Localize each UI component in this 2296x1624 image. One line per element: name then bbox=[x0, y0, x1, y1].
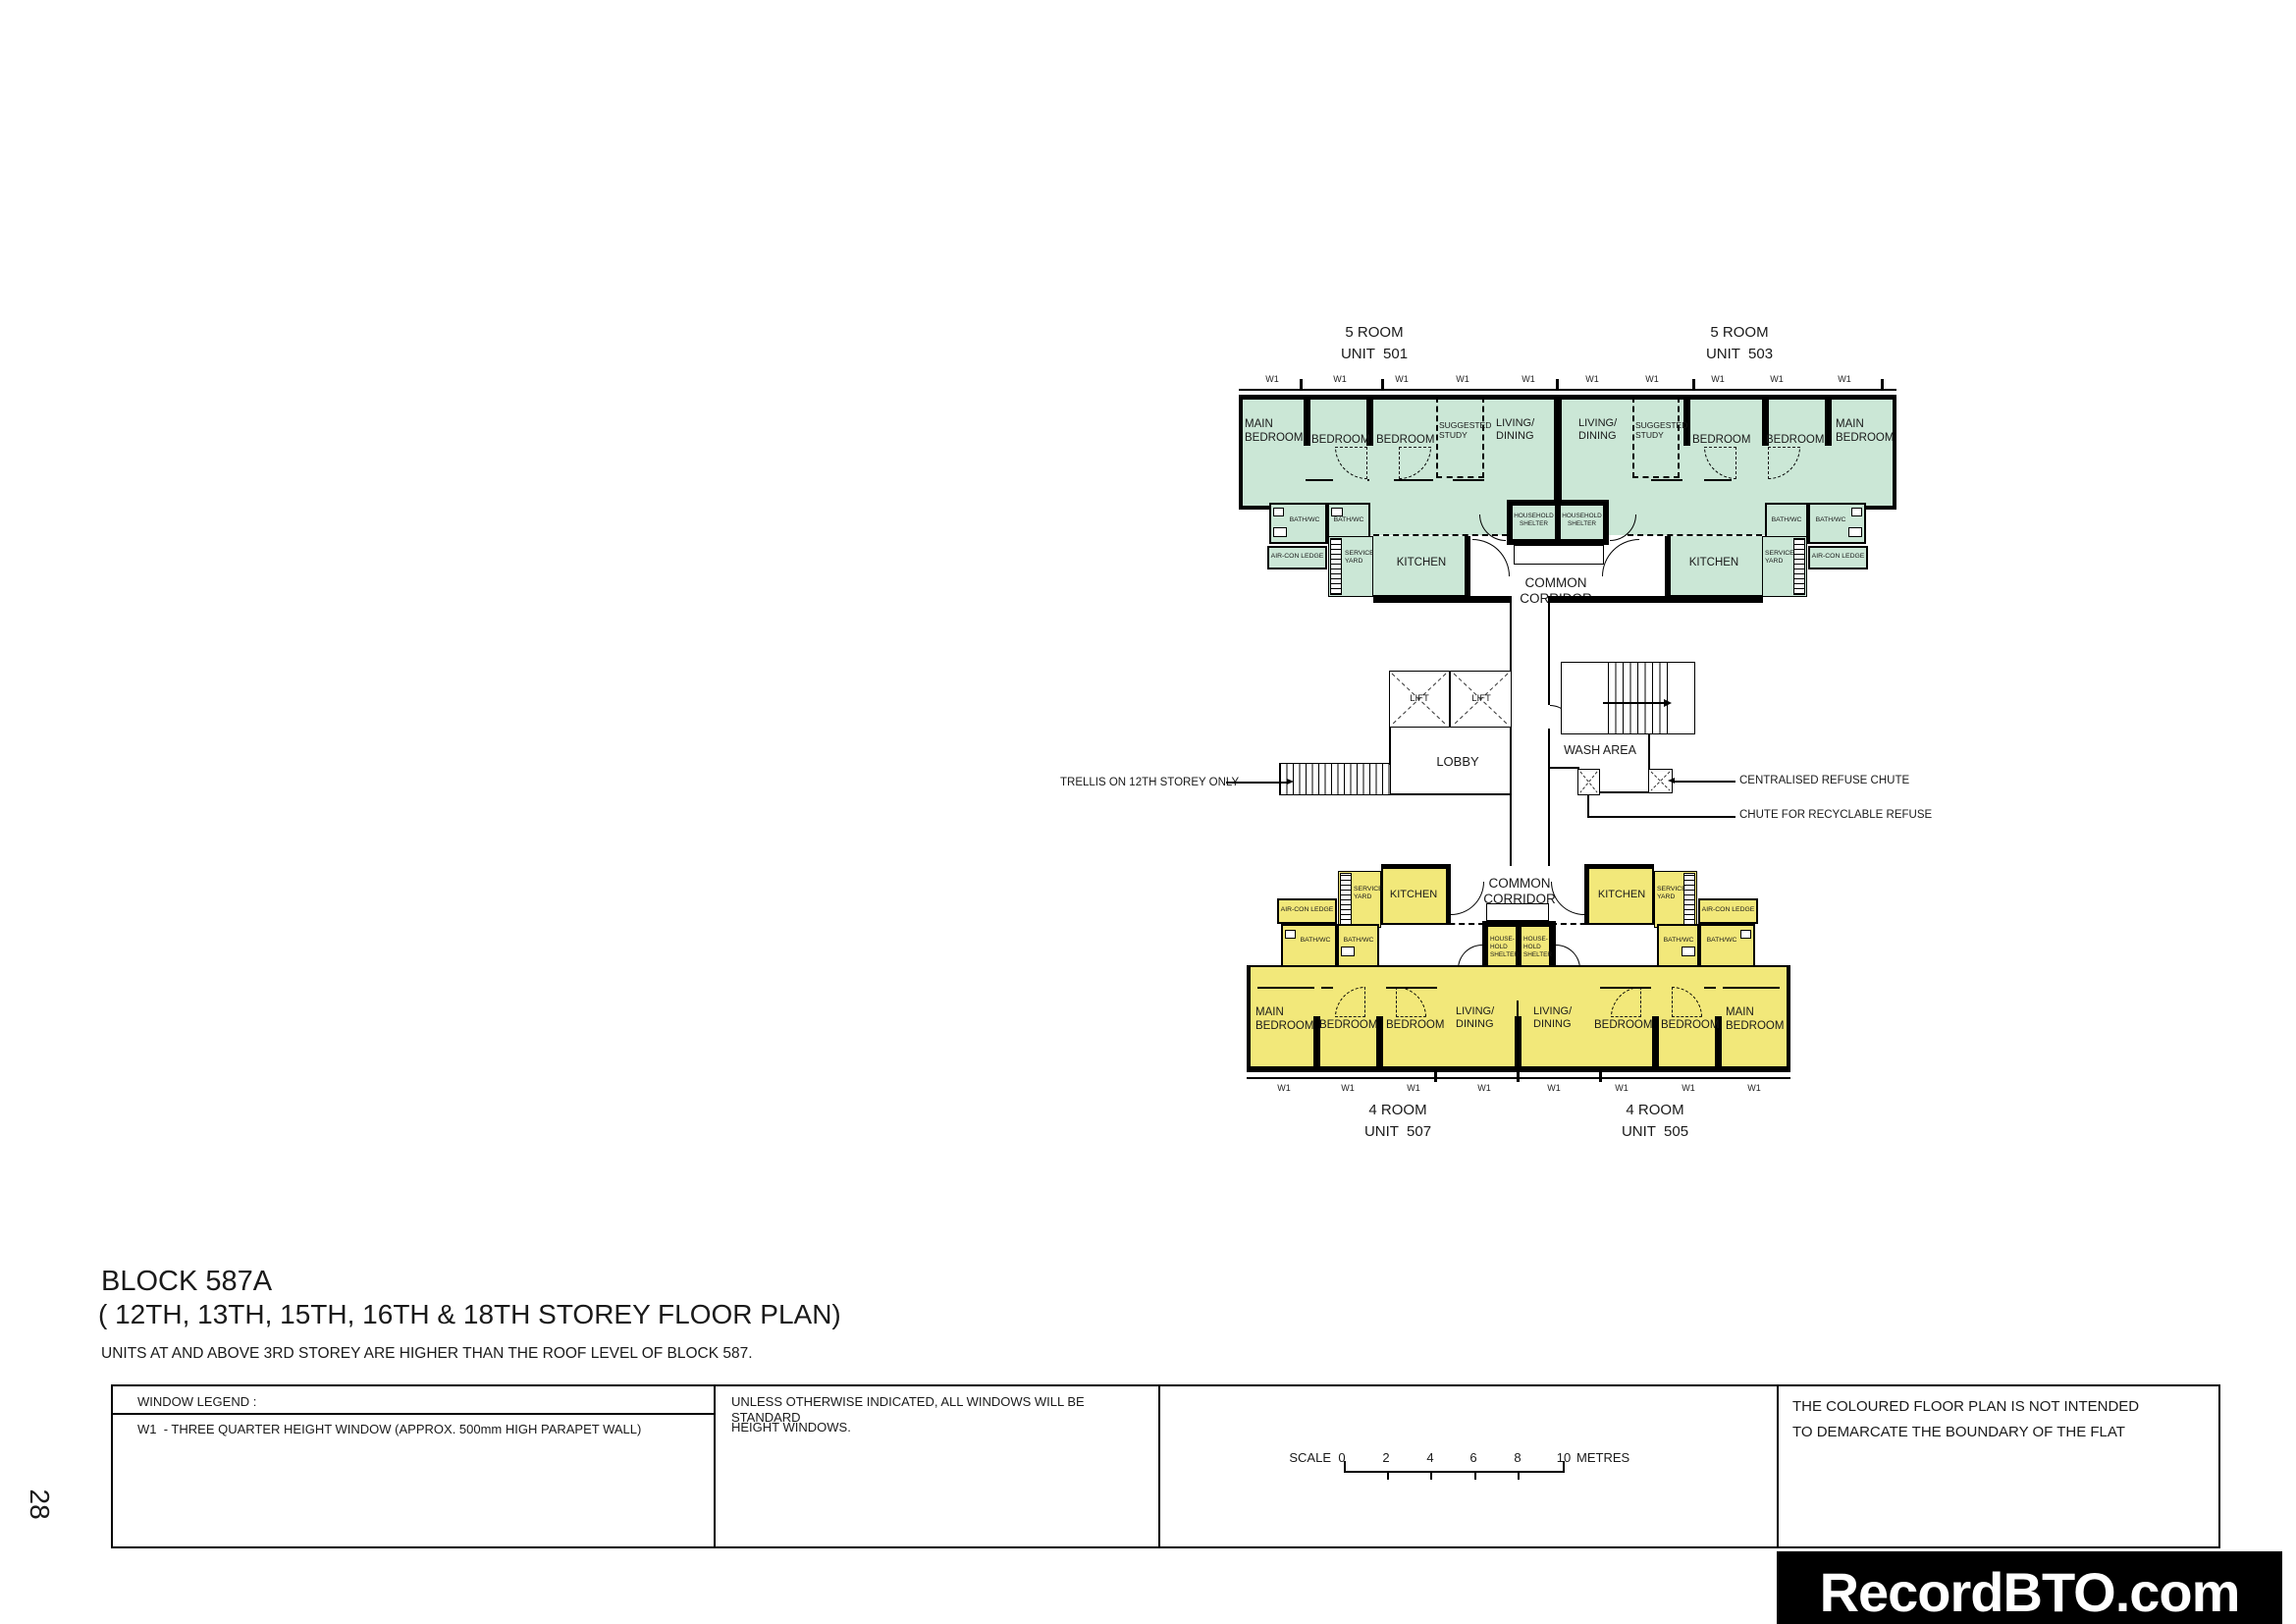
room-living-dining: LIVING/ DINING bbox=[1456, 1005, 1510, 1032]
scale-tick-4: 4 bbox=[1420, 1450, 1440, 1466]
legend-header-divider bbox=[111, 1413, 714, 1415]
thin-wall bbox=[1321, 987, 1333, 989]
windows-note-line2: HEIGHT WINDOWS. bbox=[731, 1420, 1144, 1435]
dashed-boundary bbox=[1551, 923, 1654, 925]
bath-wc bbox=[1337, 924, 1379, 967]
leader-line bbox=[1675, 781, 1735, 783]
scale-tick-2: 2 bbox=[1376, 1450, 1396, 1466]
unit-503-number: UNIT 503 bbox=[1681, 346, 1798, 363]
staircase-hatch bbox=[1608, 662, 1670, 734]
fixture bbox=[1848, 527, 1862, 537]
room-kitchen: KITCHEN bbox=[1382, 556, 1461, 569]
unit-505-number: UNIT 505 bbox=[1596, 1123, 1714, 1141]
room-suggested-study: SUGGESTED STUDY bbox=[1439, 420, 1484, 441]
room-bedroom: BEDROOM bbox=[1319, 1018, 1374, 1032]
floor-plan-page: 5 ROOM UNIT 501 5 ROOM UNIT 503 W1 W1 W1… bbox=[0, 0, 2296, 1624]
window-tag: W1 bbox=[1669, 1083, 1708, 1093]
room-bedroom: BEDROOM bbox=[1594, 1018, 1649, 1032]
legend-header: WINDOW LEGEND : bbox=[137, 1394, 530, 1410]
thin-wall bbox=[1386, 987, 1437, 989]
room-service-yard: SERVICE YARD bbox=[1345, 550, 1374, 567]
kitchen-dashed-boundary bbox=[1628, 534, 1762, 536]
fixture bbox=[1740, 930, 1751, 939]
window-tag: W1 bbox=[1534, 1083, 1574, 1093]
corridor-recess bbox=[1514, 545, 1604, 565]
window-tag: W1 bbox=[1253, 374, 1292, 384]
room-bedroom: BEDROOM bbox=[1692, 433, 1747, 447]
unit-507-type: 4 ROOM bbox=[1339, 1102, 1457, 1119]
page-title: BLOCK 587A bbox=[101, 1265, 690, 1299]
room-bath-wc: BATH/WC bbox=[1339, 937, 1378, 945]
room-bedroom: BEDROOM bbox=[1311, 433, 1366, 447]
room-bedroom: BEDROOM bbox=[1661, 1018, 1716, 1032]
scale-bar-tick bbox=[1563, 1461, 1565, 1473]
window-tag: W1 bbox=[1698, 374, 1737, 384]
unit-503-type: 5 ROOM bbox=[1681, 324, 1798, 342]
room-service-yard: SERVICE YARD bbox=[1765, 550, 1794, 567]
corridor-recess bbox=[1486, 903, 1549, 921]
window-tag: W1 bbox=[1573, 374, 1612, 384]
room-bath-wc: BATH/WC bbox=[1329, 516, 1368, 524]
window-tag: W1 bbox=[1394, 1083, 1433, 1093]
window-tag: W1 bbox=[1757, 374, 1796, 384]
dashed-boundary bbox=[1381, 923, 1484, 925]
coloured-note-line1: THE COLOURED FLOOR PLAN IS NOT INTENDED bbox=[1792, 1398, 2205, 1416]
door-arc bbox=[1610, 514, 1636, 541]
lift-label: LIFT bbox=[1392, 693, 1447, 705]
thin-wall bbox=[1453, 479, 1484, 481]
scale-bar-tick bbox=[1430, 1471, 1432, 1480]
recyclable-chute-annotation: CHUTE FOR RECYCLABLE REFUSE bbox=[1739, 809, 1932, 821]
trellis-annotation: TRELLIS ON 12TH STOREY ONLY bbox=[1060, 777, 1222, 788]
watermark-text: RecordBTO.com bbox=[1782, 1559, 2277, 1624]
room-living-dining: LIVING/ DINING bbox=[1533, 1005, 1587, 1032]
room-service-yard: SERVICE YARD bbox=[1657, 886, 1686, 902]
thin-wall bbox=[1394, 479, 1433, 481]
service-yard-hatch bbox=[1330, 538, 1342, 595]
legend-w1-desc: W1 - THREE QUARTER HEIGHT WINDOW (APPROX… bbox=[137, 1422, 687, 1437]
corridor-wall bbox=[1548, 596, 1763, 603]
leader-line bbox=[1587, 795, 1589, 817]
corridor-wall bbox=[1373, 596, 1512, 603]
room-suggested-study: SUGGESTED STUDY bbox=[1635, 420, 1681, 441]
room-main-bedroom: MAIN BEDROOM bbox=[1726, 1005, 1787, 1033]
table-border bbox=[714, 1384, 716, 1548]
window-tag: W1 bbox=[1735, 1083, 1774, 1093]
room-kitchen: KITCHEN bbox=[1675, 556, 1753, 569]
room-kitchen: KITCHEN bbox=[1589, 889, 1654, 901]
room-aircon-ledge: AIR-CON LEDGE bbox=[1700, 906, 1756, 914]
room-bath-wc: BATH/WC bbox=[1811, 516, 1850, 524]
coloured-note-line2: TO DEMARCATE THE BOUNDARY OF THE FLAT bbox=[1792, 1424, 2205, 1441]
passage-wall bbox=[1548, 729, 1550, 866]
window-tag: W1 bbox=[1320, 374, 1360, 384]
room-living-dining: LIVING/ DINING bbox=[1578, 417, 1632, 444]
fixture bbox=[1682, 947, 1695, 956]
scale-bar-line bbox=[1344, 1471, 1565, 1473]
room-household-shelter: HOUSE- HOLD SHELTER bbox=[1490, 936, 1518, 958]
window-stub bbox=[1517, 1072, 1520, 1082]
thin-wall bbox=[1723, 987, 1780, 989]
window-stub bbox=[1300, 379, 1303, 389]
door-arc bbox=[1479, 514, 1506, 541]
passage-wall bbox=[1548, 603, 1550, 705]
scale-bar-tick bbox=[1474, 1471, 1476, 1480]
room-household-shelter: HOUSEHOLD SHELTER bbox=[1513, 513, 1555, 528]
partition-wall bbox=[1825, 395, 1832, 446]
scale-bar-tick bbox=[1518, 1471, 1520, 1480]
table-border bbox=[1777, 1384, 1779, 1548]
room-aircon-ledge: AIR-CON LEDGE bbox=[1269, 553, 1325, 561]
wash-area-label: WASH AREA bbox=[1559, 743, 1641, 758]
lift-label: LIFT bbox=[1454, 693, 1509, 705]
unit-501-type: 5 ROOM bbox=[1315, 324, 1433, 342]
unit-507-number: UNIT 507 bbox=[1339, 1123, 1457, 1141]
window-tag: W1 bbox=[1382, 374, 1421, 384]
thin-wall bbox=[1704, 987, 1716, 989]
scale-tick-8: 8 bbox=[1508, 1450, 1527, 1466]
notch bbox=[1865, 506, 1896, 535]
room-service-yard: SERVICE YARD bbox=[1354, 886, 1383, 902]
window-line bbox=[1239, 389, 1896, 391]
room-living-dining: LIVING/ DINING bbox=[1496, 417, 1550, 444]
thin-wall bbox=[1517, 1001, 1519, 1018]
scale-unit: METRES bbox=[1576, 1450, 1645, 1466]
door-arc bbox=[1551, 882, 1584, 915]
fixture bbox=[1273, 527, 1287, 537]
room-bath-wc: BATH/WC bbox=[1296, 937, 1335, 945]
fixture bbox=[1273, 508, 1284, 516]
scale-label: SCALE bbox=[1274, 1450, 1331, 1466]
bath-wc bbox=[1657, 924, 1699, 967]
table-border bbox=[1158, 1384, 1160, 1548]
window-tag: W1 bbox=[1632, 374, 1672, 384]
page-number: 28 bbox=[23, 1475, 56, 1534]
lobby-wall bbox=[1389, 728, 1391, 765]
thin-wall bbox=[1306, 479, 1333, 481]
leader-arrow bbox=[1287, 779, 1294, 785]
leader-arrow bbox=[1668, 778, 1675, 784]
service-yard-hatch bbox=[1340, 873, 1352, 926]
door-arc bbox=[1451, 882, 1484, 915]
unit-505-type: 4 ROOM bbox=[1596, 1102, 1714, 1119]
staircase-midline bbox=[1603, 702, 1664, 704]
room-main-bedroom: MAIN BEDROOM bbox=[1836, 417, 1896, 445]
fixture bbox=[1285, 930, 1296, 939]
window-tag: W1 bbox=[1443, 374, 1482, 384]
thin-wall bbox=[1367, 479, 1369, 481]
thin-wall bbox=[1704, 479, 1732, 481]
window-stub bbox=[1556, 379, 1559, 389]
chute-x bbox=[1577, 769, 1600, 795]
window-tag: W1 bbox=[1602, 1083, 1641, 1093]
room-household-shelter: HOUSEHOLD SHELTER bbox=[1561, 513, 1603, 528]
wash-wall bbox=[1600, 791, 1650, 793]
window-tag: W1 bbox=[1825, 374, 1864, 384]
thin-wall bbox=[1651, 479, 1682, 481]
lobby-wall bbox=[1391, 793, 1510, 795]
partition-wall bbox=[1376, 1016, 1383, 1070]
room-bedroom: BEDROOM bbox=[1376, 433, 1431, 447]
fixture bbox=[1851, 508, 1862, 516]
window-stub bbox=[1434, 1072, 1437, 1082]
storey-note: UNITS AT AND ABOVE 3RD STOREY ARE HIGHER… bbox=[101, 1345, 886, 1364]
window-stub bbox=[1692, 379, 1695, 389]
notch bbox=[1239, 506, 1270, 535]
leader-line bbox=[1587, 816, 1735, 818]
room-bath-wc: BATH/WC bbox=[1767, 516, 1806, 524]
window-stub bbox=[1599, 1072, 1602, 1082]
scale-bar-tick bbox=[1344, 1461, 1346, 1473]
room-bath-wc: BATH/WC bbox=[1702, 937, 1741, 945]
room-main-bedroom: MAIN BEDROOM bbox=[1245, 417, 1306, 445]
unit-501-number: UNIT 501 bbox=[1315, 346, 1433, 363]
partition-wall bbox=[1515, 1016, 1522, 1070]
service-yard-hatch bbox=[1793, 538, 1805, 595]
wash-wall bbox=[1648, 734, 1650, 770]
wash-wall bbox=[1550, 767, 1579, 769]
room-bedroom: BEDROOM bbox=[1386, 1018, 1441, 1032]
scale-tick-0: 0 bbox=[1332, 1450, 1352, 1466]
window-tag: W1 bbox=[1465, 1083, 1504, 1093]
partition-wall bbox=[1652, 1016, 1659, 1070]
fixture bbox=[1341, 947, 1355, 956]
room-bath-wc: BATH/WC bbox=[1285, 516, 1324, 524]
window-tag: W1 bbox=[1328, 1083, 1367, 1093]
room-household-shelter: HOUSE- HOLD SHELTER bbox=[1523, 936, 1551, 958]
trellis-hatch bbox=[1279, 763, 1391, 795]
passage-wall bbox=[1510, 603, 1512, 866]
scale-bar-tick bbox=[1387, 1471, 1389, 1480]
window-tag: W1 bbox=[1264, 1083, 1304, 1093]
scale-tick-6: 6 bbox=[1464, 1450, 1483, 1466]
fixture bbox=[1331, 508, 1343, 516]
centralised-chute-annotation: CENTRALISED REFUSE CHUTE bbox=[1739, 775, 1909, 786]
window-stub bbox=[1381, 379, 1384, 389]
room-bedroom: BEDROOM bbox=[1766, 433, 1821, 447]
room-aircon-ledge: AIR-CON LEDGE bbox=[1279, 906, 1335, 914]
thin-wall bbox=[1600, 987, 1651, 989]
thin-wall bbox=[1257, 987, 1314, 989]
door-arc bbox=[1472, 539, 1510, 576]
room-bath-wc: BATH/WC bbox=[1659, 937, 1698, 945]
room-aircon-ledge: AIR-CON LEDGE bbox=[1810, 553, 1866, 561]
window-tag: W1 bbox=[1509, 374, 1548, 384]
lobby-label: LOBBY bbox=[1428, 754, 1487, 770]
room-main-bedroom: MAIN BEDROOM bbox=[1255, 1005, 1316, 1033]
window-stub bbox=[1881, 379, 1884, 389]
leader-line bbox=[1226, 782, 1287, 784]
page-subtitle: ( 12TH, 13TH, 15TH, 16TH & 18TH STOREY F… bbox=[98, 1298, 982, 1331]
staircase-arrow bbox=[1664, 699, 1672, 707]
room-kitchen: KITCHEN bbox=[1381, 889, 1446, 901]
